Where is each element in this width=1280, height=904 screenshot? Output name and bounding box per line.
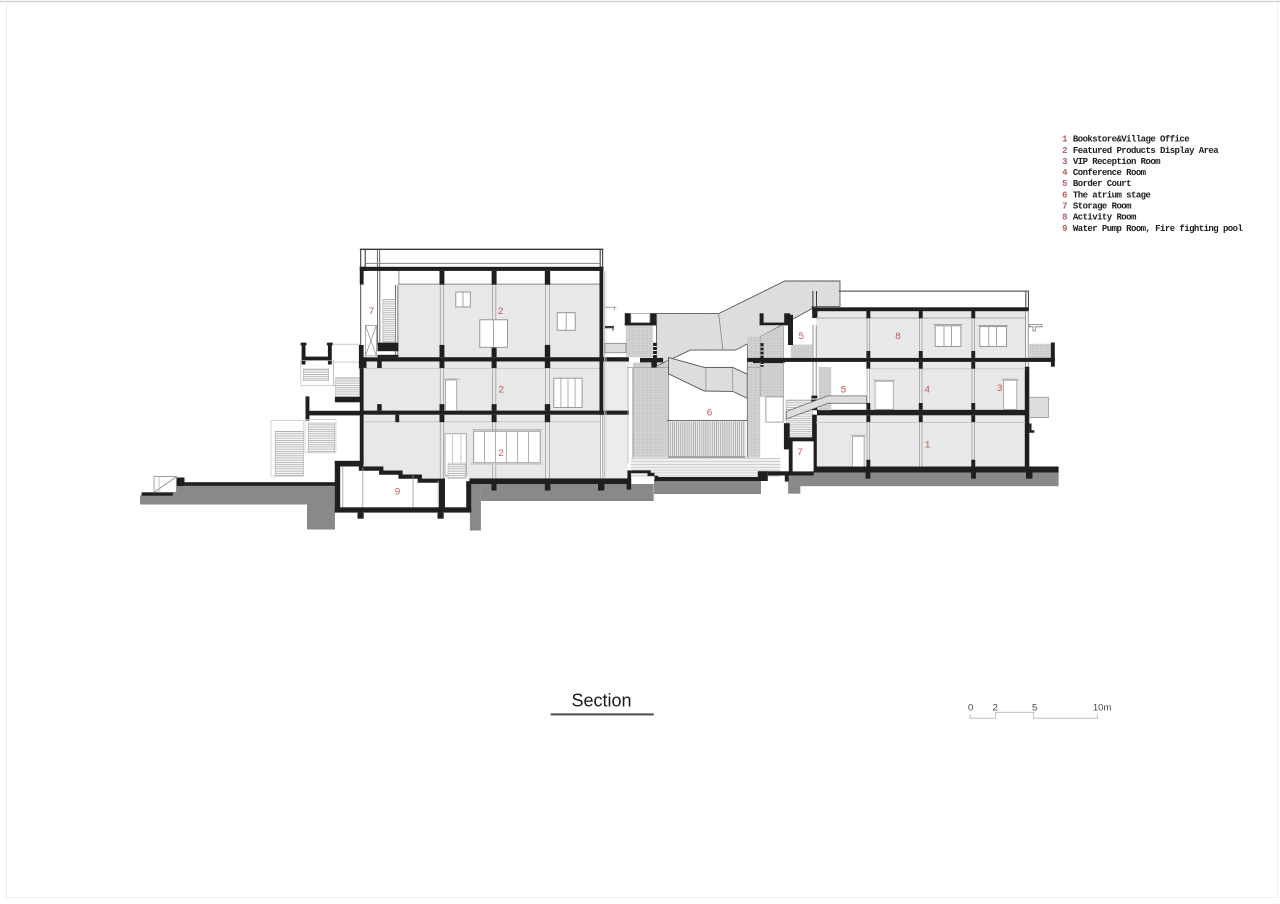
svg-text:Featured Products Display Area: Featured Products Display Area (1073, 146, 1219, 156)
svg-text:5: 5 (1062, 179, 1067, 189)
svg-text:7: 7 (797, 448, 803, 459)
svg-text:8: 8 (1062, 213, 1067, 223)
svg-text:0: 0 (968, 702, 973, 713)
svg-text:1: 1 (1062, 135, 1068, 145)
svg-text:Bookstore&Village Office: Bookstore&Village Office (1073, 135, 1189, 145)
svg-text:7: 7 (368, 307, 374, 318)
svg-text:9: 9 (394, 488, 400, 499)
svg-text:Conference Room: Conference Room (1073, 168, 1147, 178)
svg-text:Border Court: Border Court (1073, 179, 1131, 189)
svg-text:2: 2 (498, 449, 504, 460)
svg-text:Section: Section (571, 690, 631, 710)
svg-text:1: 1 (924, 441, 930, 452)
svg-text:5: 5 (798, 332, 804, 343)
svg-text:7: 7 (1062, 202, 1067, 212)
svg-text:2: 2 (498, 307, 504, 318)
svg-text:Storage Room: Storage Room (1073, 202, 1132, 212)
svg-text:6: 6 (1062, 190, 1067, 200)
svg-text:2: 2 (1062, 146, 1067, 156)
svg-text:VIP Reception Room: VIP Reception Room (1073, 157, 1161, 167)
svg-text:4: 4 (1062, 168, 1068, 178)
svg-text:5: 5 (1032, 702, 1037, 713)
svg-text:6: 6 (706, 409, 712, 420)
svg-text:9: 9 (1062, 224, 1067, 234)
svg-text:5: 5 (840, 385, 846, 396)
svg-text:10m: 10m (1093, 702, 1112, 713)
svg-text:8: 8 (895, 332, 901, 343)
svg-text:3: 3 (1062, 157, 1067, 167)
svg-text:3: 3 (997, 384, 1003, 395)
svg-text:2: 2 (498, 385, 504, 396)
svg-text:2: 2 (993, 702, 998, 713)
svg-text:Water Pump Room, Fire fighting: Water Pump Room, Fire fighting pool (1073, 224, 1244, 234)
svg-text:Activity Room: Activity Room (1073, 213, 1137, 223)
svg-text:The atrium stage: The atrium stage (1073, 190, 1151, 200)
svg-text:4: 4 (924, 385, 930, 396)
